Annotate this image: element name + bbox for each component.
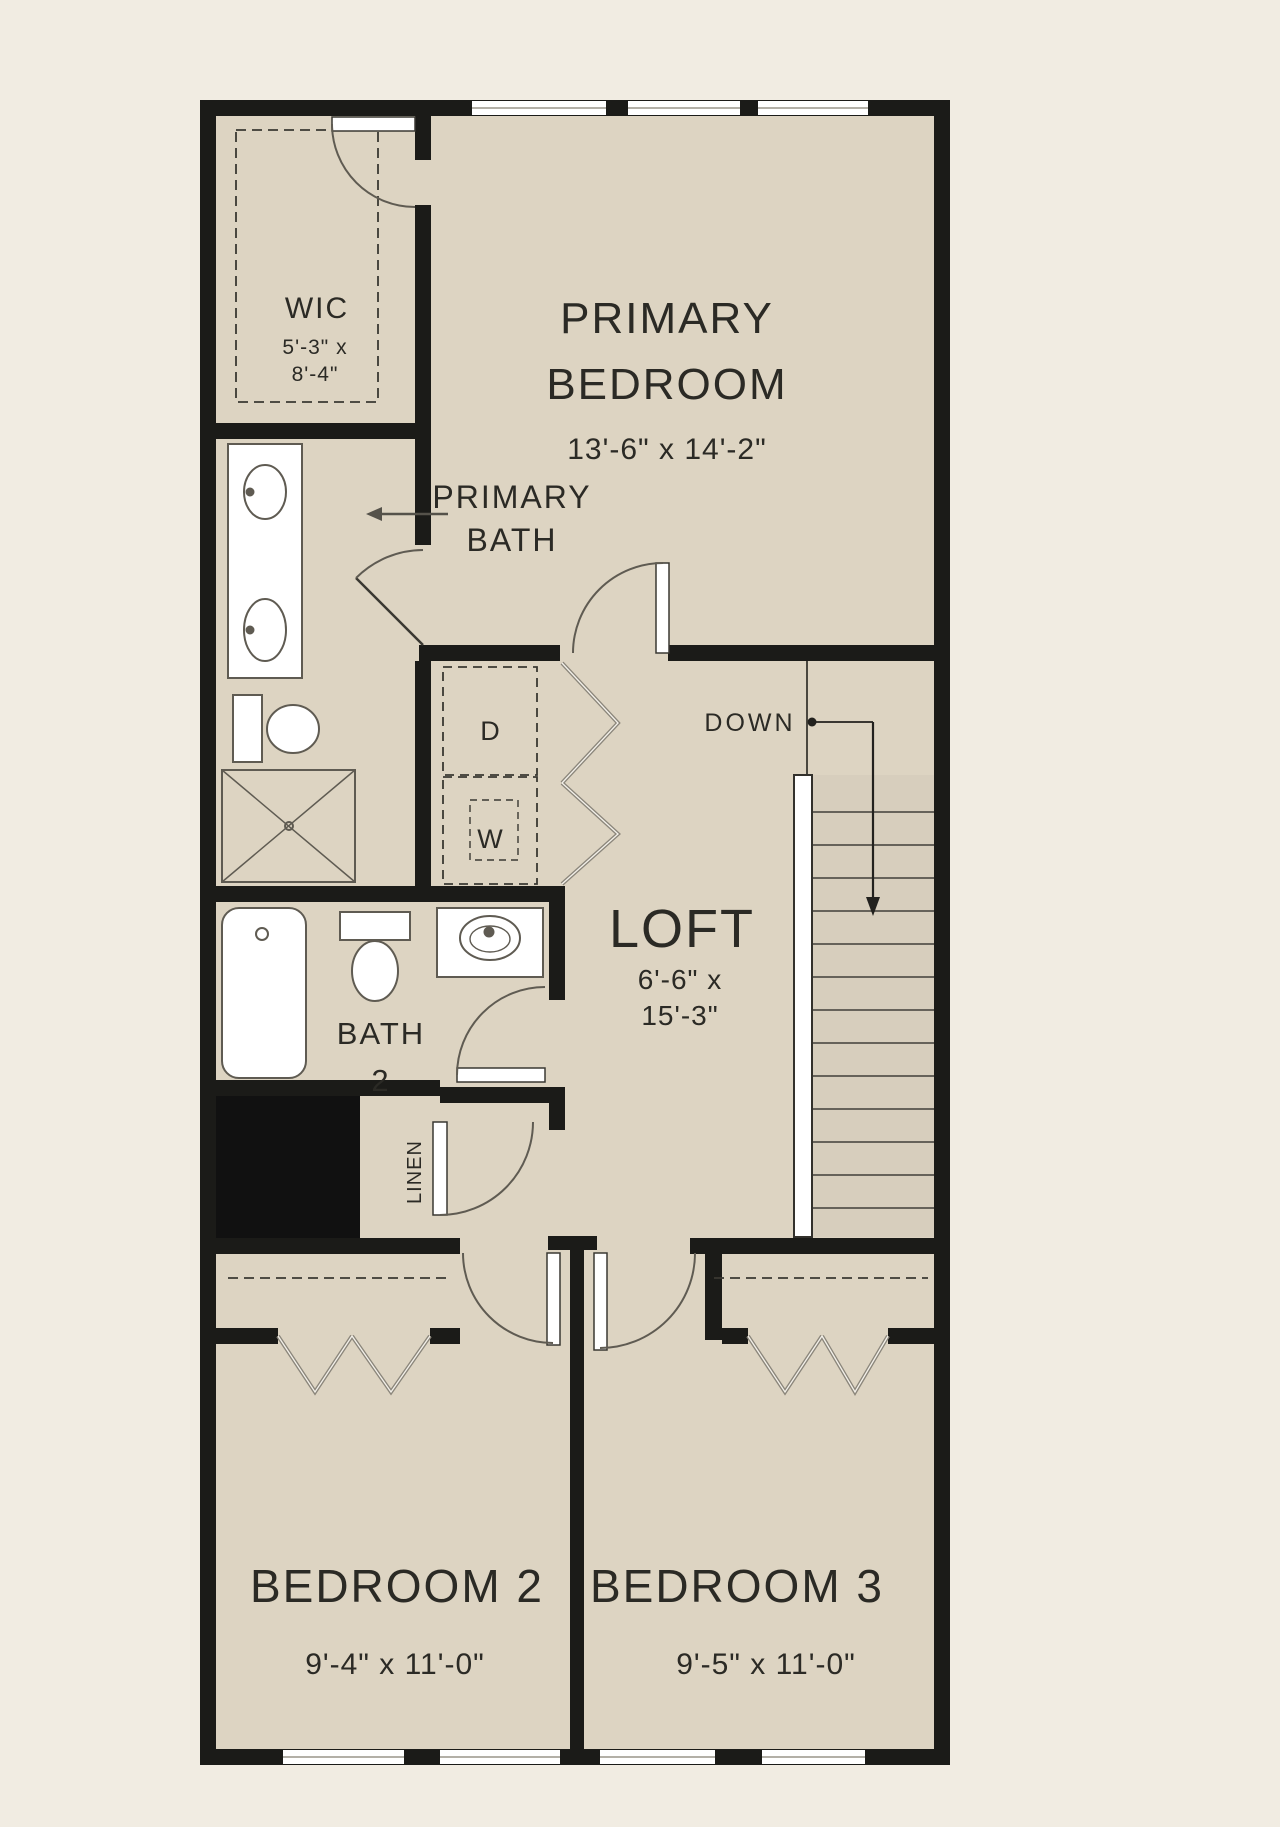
down-leader-dot (808, 718, 817, 727)
washer-label: W (477, 824, 503, 854)
bedroom2-label: BEDROOM 2 (250, 1560, 544, 1612)
dryer-label: D (480, 716, 500, 746)
bath2-label-1: BATH (337, 1016, 425, 1051)
bath2-door-leaf (457, 1068, 545, 1082)
down-label: DOWN (704, 709, 795, 737)
loft-dim1: 6'-6" x (638, 964, 723, 995)
tub (222, 908, 306, 1078)
toilet-tank (340, 912, 410, 940)
vanity-counter (228, 444, 302, 678)
primary-bath-label-1: PRIMARY (432, 479, 591, 515)
primary-bedroom-dims: 13'-6" x 14'-2" (567, 433, 767, 466)
bedroom3-dims: 9'-5" x 11'-0" (676, 1648, 856, 1681)
primary-bath-label-2: BATH (467, 522, 558, 558)
loft-dim2: 15'-3" (641, 1000, 718, 1031)
door-leaf (594, 1253, 607, 1350)
wic-dim1: 5'-3" x (282, 336, 347, 359)
floor-plan: WIC 5'-3" x 8'-4" PRIMARY BEDROOM 13'-6"… (0, 0, 1280, 1822)
loft-label: LOFT (609, 899, 755, 959)
primary-bedroom-label-1: PRIMARY (560, 294, 774, 343)
faucet-dot (247, 489, 254, 496)
linen-door-leaf (433, 1122, 447, 1215)
wic-label: WIC (285, 292, 349, 325)
primary-bedroom-label-2: BEDROOM (546, 360, 787, 409)
wic-dim2: 8'-4" (292, 363, 339, 386)
wic-door-leaf (332, 117, 415, 131)
bath2-label-2: 2 (371, 1063, 390, 1098)
vanity (437, 908, 543, 977)
faucet-dot (247, 627, 254, 634)
toilet-bowl (267, 705, 319, 753)
bedroom3-label: BEDROOM 3 (590, 1560, 884, 1612)
stair-stringer (794, 775, 812, 1237)
linen-label: LINEN (404, 1140, 426, 1204)
bedroom2-dims: 9'-4" x 11'-0" (305, 1648, 485, 1681)
door-leaf (656, 563, 669, 653)
toilet-bowl (352, 941, 398, 1001)
faucet-dot (485, 928, 494, 937)
door-leaf (547, 1253, 560, 1345)
toilet-tank (233, 695, 262, 762)
chase-void (216, 1096, 360, 1238)
